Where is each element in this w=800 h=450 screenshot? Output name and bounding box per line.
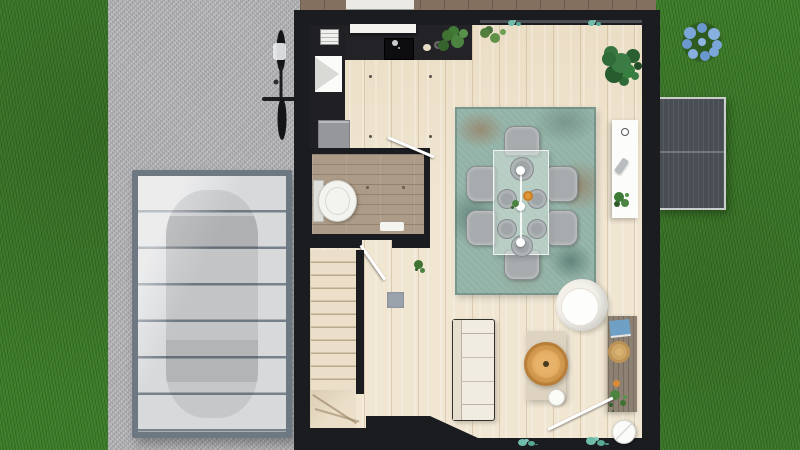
armchair-cushion bbox=[561, 288, 599, 326]
orange-accent bbox=[613, 380, 620, 387]
sofa bbox=[452, 319, 495, 421]
floor-spot bbox=[402, 186, 405, 189]
floor-spot bbox=[369, 135, 372, 138]
deck-table bbox=[346, 0, 414, 10]
pendant-ball bbox=[516, 238, 525, 247]
door-mat bbox=[387, 292, 404, 308]
blue-book bbox=[609, 319, 631, 338]
shed-ridge-line bbox=[658, 151, 724, 153]
rattan-tray bbox=[524, 342, 568, 386]
cream-bowl bbox=[423, 44, 431, 51]
kitchen-sink bbox=[384, 38, 414, 60]
place-setting bbox=[527, 219, 547, 239]
dining-chair bbox=[548, 166, 578, 202]
sill-plant-top-right bbox=[588, 20, 595, 26]
floor-plan-render bbox=[0, 0, 800, 450]
straight-steps bbox=[311, 250, 356, 390]
console-plant bbox=[614, 192, 624, 202]
hall-wall-left bbox=[306, 240, 362, 248]
winder-steps bbox=[311, 390, 356, 428]
place-setting bbox=[497, 219, 517, 239]
carport bbox=[132, 170, 292, 438]
sill-plant-bottom-left bbox=[518, 439, 527, 446]
floor-spot bbox=[369, 75, 372, 78]
toilet-seat-ring bbox=[325, 187, 350, 215]
floor-spot bbox=[366, 186, 369, 189]
dining-chair bbox=[548, 210, 578, 246]
kitchen-faucet bbox=[392, 40, 398, 46]
staircase bbox=[311, 250, 356, 428]
pendant-ball bbox=[516, 166, 525, 175]
hall-wall-right bbox=[392, 240, 430, 248]
floor-lamp bbox=[612, 420, 636, 444]
flower-blooms bbox=[698, 38, 706, 46]
toilet-bowl bbox=[318, 180, 357, 222]
kitchen-plant-1 bbox=[442, 30, 453, 41]
sofa-seam bbox=[461, 333, 494, 334]
bath-mat bbox=[380, 222, 404, 231]
floor-spot bbox=[429, 135, 432, 138]
stair-railing-wall bbox=[356, 250, 364, 394]
flower-bush bbox=[681, 21, 723, 63]
floor-spot bbox=[429, 75, 432, 78]
orange-bowl bbox=[523, 191, 533, 201]
garden-shed bbox=[656, 97, 726, 210]
sill-plant-bottom-right bbox=[586, 437, 596, 445]
table-sprig bbox=[512, 200, 519, 207]
round-armchair bbox=[556, 279, 608, 331]
hall-plant bbox=[414, 260, 423, 269]
sofa-seam bbox=[461, 404, 494, 405]
white-teapot bbox=[548, 389, 565, 406]
sofa-seam bbox=[461, 381, 494, 382]
black-bowl bbox=[434, 41, 443, 49]
car-under-glass bbox=[166, 190, 258, 418]
sofa-seam bbox=[461, 357, 494, 358]
tray-knob bbox=[543, 361, 549, 367]
dining-chair bbox=[466, 210, 496, 246]
straw-hat bbox=[608, 341, 630, 363]
kitchen-white-fixture bbox=[315, 56, 342, 92]
sill-plant-top-left bbox=[508, 20, 515, 26]
dining-chair bbox=[466, 166, 496, 202]
kitchen-appliance bbox=[320, 29, 339, 45]
kitchen-shelf bbox=[350, 24, 416, 33]
sofa-backrest bbox=[453, 320, 462, 420]
top-window-strip bbox=[480, 20, 642, 23]
console-ring bbox=[621, 128, 629, 136]
monstera-plant bbox=[602, 52, 616, 66]
kitchen-plant-2 bbox=[480, 28, 490, 38]
